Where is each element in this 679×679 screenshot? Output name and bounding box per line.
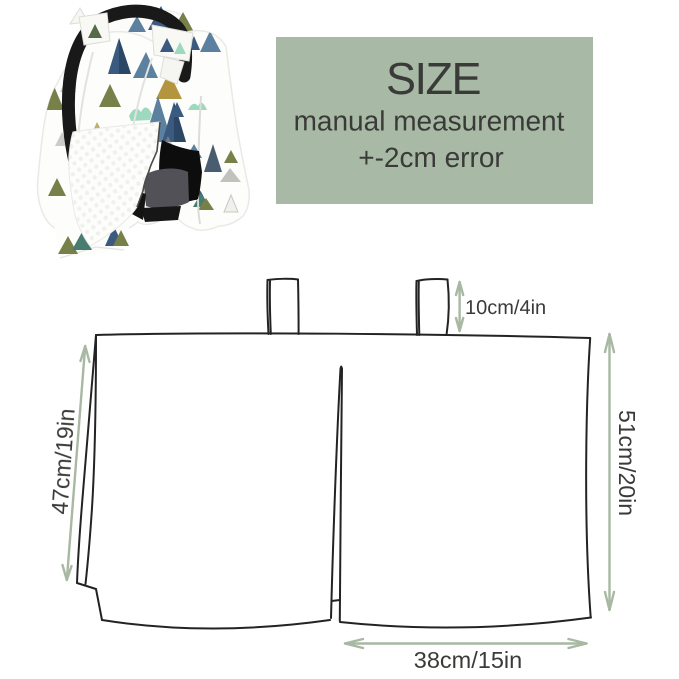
svg-text:SIZE: SIZE xyxy=(386,53,481,104)
svg-text:+-2cm error: +-2cm error xyxy=(358,142,503,173)
svg-text:38cm/15in: 38cm/15in xyxy=(414,647,522,673)
svg-text:manual measurement: manual measurement xyxy=(294,105,565,136)
svg-text:10cm/4in: 10cm/4in xyxy=(465,297,546,319)
svg-text:51cm/20in: 51cm/20in xyxy=(614,410,640,516)
